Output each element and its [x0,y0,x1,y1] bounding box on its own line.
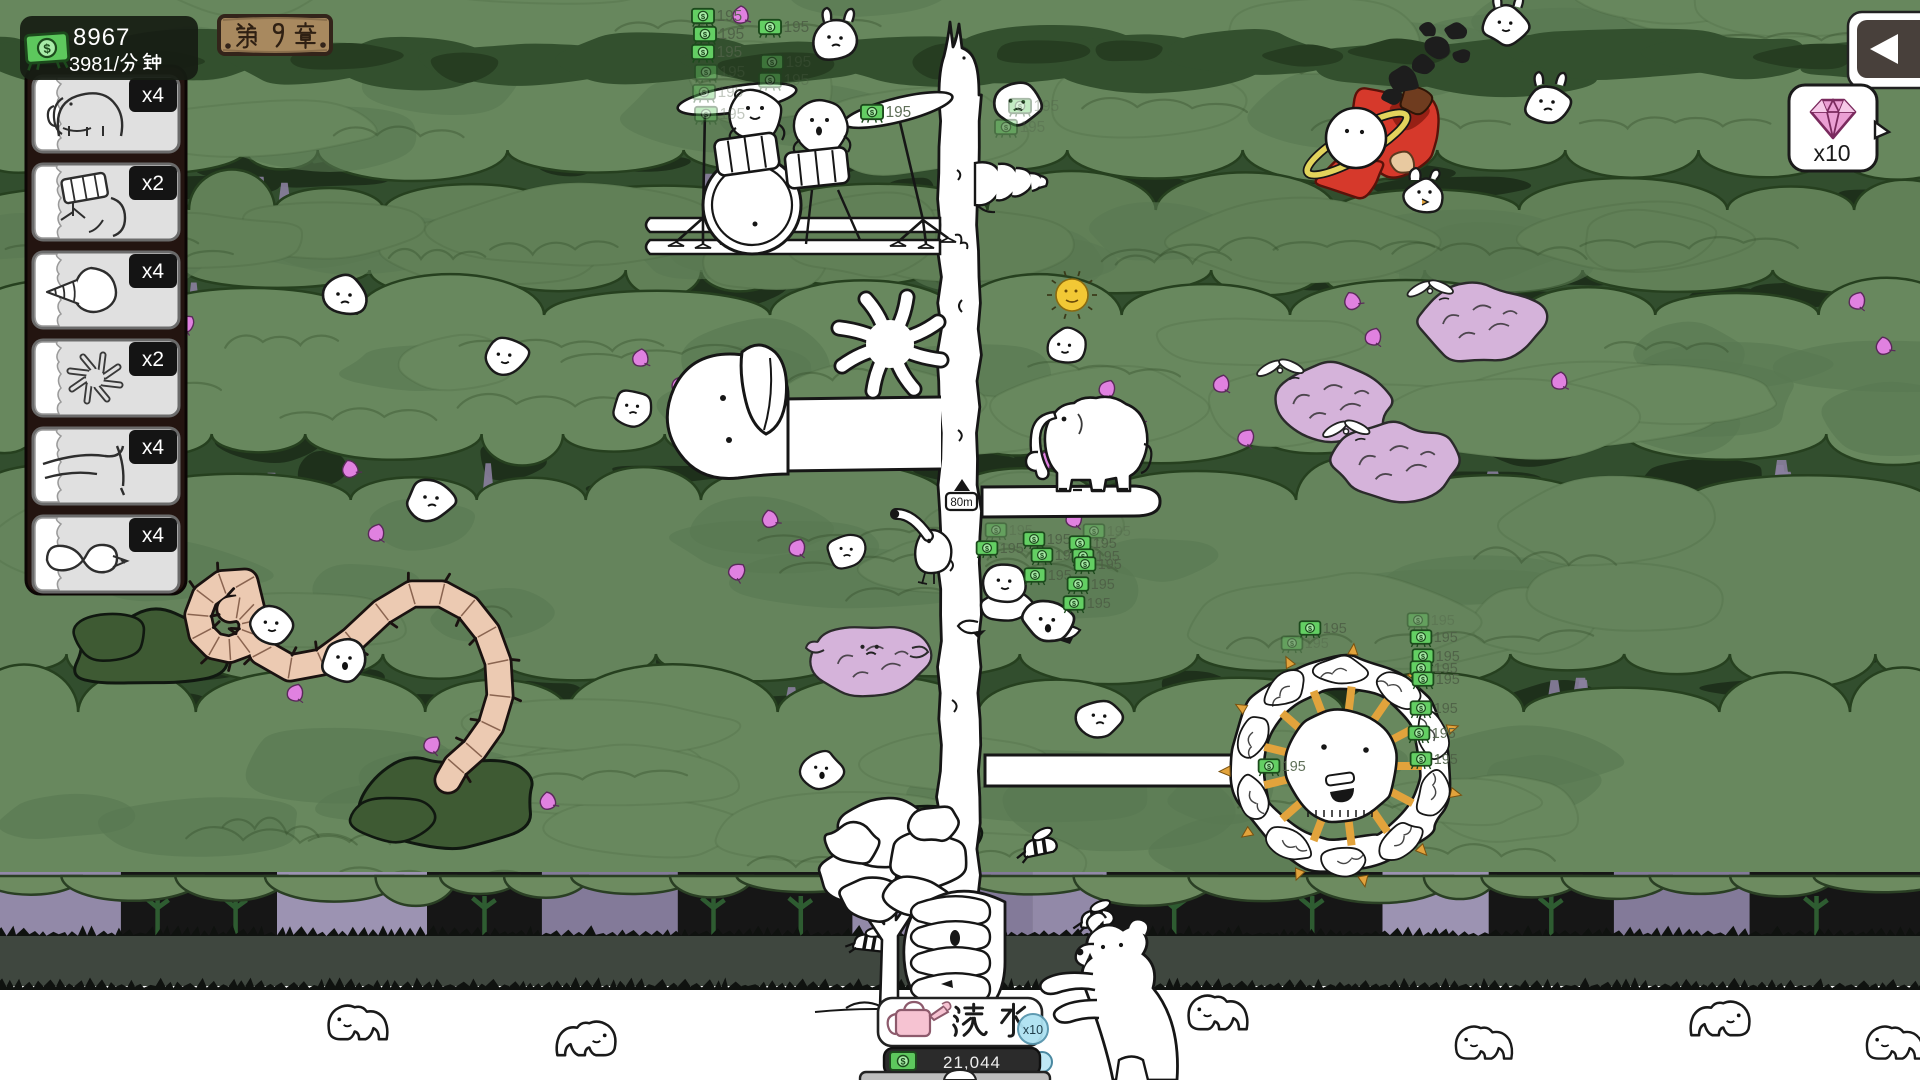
svg-text:195: 195 [1020,119,1046,136]
svg-text:3981/: 3981/ [69,54,119,76]
svg-text:195: 195 [1282,759,1306,775]
svg-text:x4: x4 [142,524,165,547]
svg-text:80m: 80m [950,497,972,509]
svg-text:195: 195 [784,72,810,89]
svg-text:x10: x10 [1813,140,1850,166]
svg-text:195: 195 [720,64,746,81]
svg-text:195: 195 [1098,557,1122,573]
svg-text:$: $ [1032,535,1036,544]
svg-text:8967: 8967 [73,24,130,51]
svg-text:$: $ [1076,580,1080,589]
svg-text:195: 195 [718,84,744,101]
svg-text:195: 195 [1432,726,1456,742]
svg-text:$: $ [1419,755,1423,764]
svg-text:195: 195 [1047,532,1071,548]
svg-text:$: $ [1308,624,1312,633]
svg-text:$: $ [1072,599,1076,608]
svg-text:195: 195 [1034,98,1060,115]
svg-text:x10: x10 [1023,1023,1043,1037]
svg-text:195: 195 [1434,701,1458,717]
svg-text:195: 195 [1431,613,1455,629]
svg-text:$: $ [1421,652,1425,661]
svg-text:$: $ [1078,539,1082,548]
svg-text:195: 195 [784,19,810,36]
svg-text:$: $ [1419,704,1423,713]
svg-text:195: 195 [786,54,812,71]
svg-text:$: $ [1033,571,1037,580]
svg-text:195: 195 [1323,621,1347,637]
svg-text:195: 195 [1000,541,1024,557]
svg-text:21,044: 21,044 [943,1053,1001,1072]
svg-text:$: $ [1416,616,1420,625]
svg-text:x4: x4 [142,436,165,459]
svg-text:$: $ [1092,527,1096,536]
svg-text:195: 195 [717,8,743,25]
svg-text:$: $ [1421,675,1425,684]
svg-text:x4: x4 [142,260,165,283]
svg-text:195: 195 [886,104,912,121]
svg-text:195: 195 [1091,577,1115,593]
svg-text:195: 195 [1087,596,1111,612]
svg-text:195: 195 [1434,752,1458,768]
svg-text:$: $ [1040,551,1044,560]
svg-text:x2: x2 [142,172,164,195]
svg-text:x4: x4 [142,84,165,107]
svg-text:195: 195 [717,44,743,61]
svg-text:$: $ [994,526,998,535]
svg-text:195: 195 [720,106,746,123]
svg-text:$: $ [985,544,989,553]
svg-text:x2: x2 [142,348,164,371]
svg-text:$: $ [1419,633,1423,642]
svg-text:195: 195 [1434,630,1458,646]
svg-text:195: 195 [1305,636,1329,652]
svg-text:$: $ [1417,729,1421,738]
svg-text:$: $ [1290,639,1294,648]
svg-text:$: $ [900,1057,905,1067]
svg-text:195: 195 [1436,672,1460,688]
svg-text:$: $ [1267,762,1271,771]
svg-text:$: $ [1083,560,1087,569]
svg-text:195: 195 [719,26,745,43]
